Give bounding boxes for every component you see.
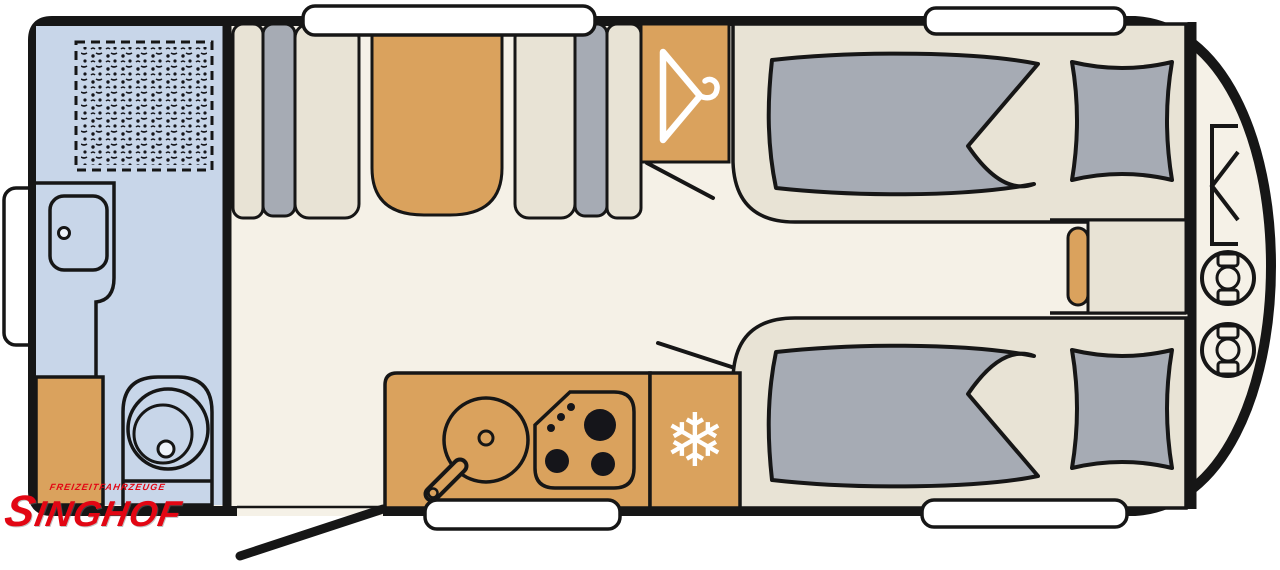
single-bed-top <box>733 24 1186 222</box>
chest-handle <box>1068 228 1088 305</box>
dealer-logo-title: SINGHOF <box>2 490 186 534</box>
dinette-bench-right <box>515 24 641 218</box>
backrest <box>263 24 295 216</box>
entry-door <box>237 500 383 556</box>
burner <box>584 409 616 441</box>
kitchen-unit <box>385 373 650 508</box>
bedside-chest <box>1050 220 1186 313</box>
burner <box>545 449 569 473</box>
pillow <box>1072 62 1172 180</box>
dealer-logo: FREIZEITFAHRZEUGE SINGHOF <box>2 483 187 534</box>
window-top-dinette <box>303 6 595 35</box>
toilet-flush <box>158 441 174 457</box>
refrigerator: ❄ <box>650 373 740 508</box>
window-top-bed <box>925 8 1125 34</box>
basin-drain <box>59 228 70 239</box>
window-bottom-bed <box>922 500 1127 527</box>
dinette-table <box>372 24 502 215</box>
single-bed-bottom <box>733 318 1186 508</box>
window-bottom-kitchen <box>425 500 620 529</box>
dinette-bench-left <box>233 24 359 218</box>
burner <box>591 452 615 476</box>
floorplan-drawing: ❄ <box>0 0 1280 570</box>
snowflake-icon: ❄ <box>664 398 726 484</box>
shower-hatch <box>81 47 207 165</box>
caravan-floorplan: ❄ FREIZEITFAHRZEUGE SINGHOF <box>0 0 1280 570</box>
backrest <box>575 24 607 216</box>
shower <box>76 42 212 170</box>
pillow <box>1072 350 1172 468</box>
